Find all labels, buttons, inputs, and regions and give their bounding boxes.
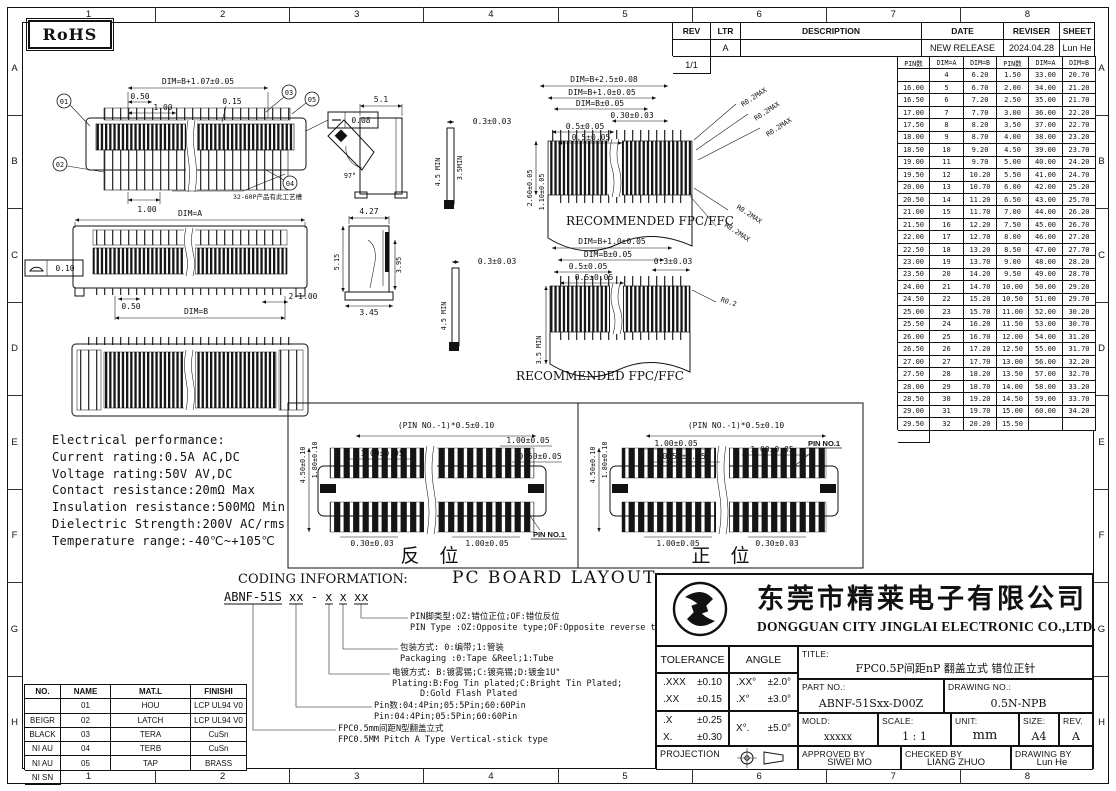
dim: 1.00 (137, 205, 156, 214)
dim: 5.15 (333, 254, 341, 270)
balloon-05: 05 (308, 96, 316, 104)
balloon-01: 01 (60, 98, 68, 106)
process-groove-note: 32-60P产品有此工艺槽 (233, 192, 302, 201)
dim: DIM=B±0.05 (584, 250, 632, 259)
balloon-03: 03 (285, 89, 293, 97)
balloon-02: 02 (56, 161, 64, 169)
dim: 4.27 (359, 207, 378, 216)
dim: 1.00±0.05 (465, 539, 509, 548)
angle-dim: 97° (344, 172, 356, 180)
radius-dim: R0.2MAX (735, 203, 764, 226)
dim: 2.60±0.05 (526, 170, 534, 207)
dim: 0.3±0.03 (478, 257, 517, 266)
dim: 0.15 (222, 97, 241, 106)
dim: 0.30±0.03 (610, 111, 654, 120)
dim: 0.30±0.03 (350, 539, 394, 548)
dim: 0.5±0.05 (566, 122, 605, 131)
dim: 1.00±0.05 (360, 449, 404, 458)
dim: 1.10±0.05 (538, 174, 546, 211)
dim: 0.50 (121, 302, 140, 311)
dim: 0.5±0.05 (572, 133, 611, 142)
radius-dim: R0.2MAX (740, 86, 769, 109)
dim: DIM=B+1.0±0.05 (568, 88, 636, 97)
company-logo (674, 583, 726, 635)
dim: 5.1 (374, 95, 389, 104)
dim: DIM=B±0.05 (576, 99, 624, 108)
front-view-closed: DIM=A 0.50 DIM=B 2-1.00 0.10 (25, 209, 318, 320)
projection-symbol (737, 748, 783, 768)
dim: 0.30±0.03 (755, 539, 799, 548)
radius-dim: R0.2 (720, 296, 738, 309)
side-view-open: 5.1 97° (328, 95, 407, 198)
dim: 0.5±0.05 (569, 262, 608, 271)
dim: 1.80±0.10 (601, 442, 609, 479)
dim: 0.3±0.03 (473, 117, 512, 126)
dim: 0.50 (130, 92, 149, 101)
coding-tree-lines (224, 604, 408, 730)
dim: 4.5 MIN (440, 302, 448, 331)
flatness-dim: 0.10 (55, 264, 74, 273)
fpc-view-2: 0.3±0.03 4.5 MIN DIM=B+1.0±0.05 DIM=B±0.… (440, 237, 738, 383)
dim: 0.3±0.03 (654, 257, 693, 266)
front-view-open: DIM=B+1.07±0.05 0.50 1.00 0.15 1.00 32-6… (53, 77, 378, 214)
dim: 1.00 (153, 103, 172, 112)
dim: DIM=A (178, 209, 202, 218)
fpc-caption: RECOMMENDED FPC/FFC (566, 214, 734, 228)
pin1-label: PIN NO.1 (808, 439, 840, 448)
fpc-view-1: 0.3±0.03 4.5 MIN 3.5MIN DIM=B+2.5±0.08 D… (434, 75, 794, 251)
technical-drawings: DIM=B+1.07±0.05 0.50 1.00 0.15 1.00 32-6… (0, 0, 1116, 791)
dim: DIM=B+1.07±0.05 (162, 77, 234, 86)
dim: 2-1.00 (289, 292, 318, 301)
drawing-sheet: 12345678 12345678 ABCDEFGH ABCDEFGH RoHS… (0, 0, 1116, 791)
bottom-view (72, 337, 308, 416)
dim: 1.00±0.05 (750, 445, 794, 454)
pin1-label: PIN NO.1 (533, 530, 565, 539)
reverse-caption: 反 位 (400, 545, 465, 567)
dim: 1.00±0.05 (654, 439, 698, 448)
radius-dim: R0.2MAX (753, 100, 782, 123)
dim: 3.95 (395, 257, 403, 273)
pcb-layout-reverse: 4.50±0.10 1.80±0.10 (PIN NO.-1)*0.5±0.10… (288, 403, 578, 568)
dim: 4.50±0.10 (299, 447, 307, 484)
balloon-04: 04 (286, 180, 294, 188)
dim: 1.00±0.05 (506, 436, 550, 445)
dim: 4.5 MIN (434, 158, 442, 187)
normal-caption: 正 位 (691, 545, 756, 567)
dim: 0.5±0.05 (575, 273, 614, 282)
dim: (PIN NO.-1)*0.5±0.10 (398, 421, 495, 430)
dim: DIM=B+2.5±0.08 (570, 75, 638, 84)
flatness-dim: 0.08 (351, 116, 370, 125)
dim: (PIN NO.-1)*0.5±0.10 (688, 421, 785, 430)
dim: 4.50±0.10 (589, 447, 597, 484)
fpc-caption: RECOMMENDED FPC/FFC (516, 369, 684, 383)
dim: 0.50±0.05 (662, 452, 706, 461)
dim: 3.45 (359, 308, 378, 317)
dim: 1.80±0.10 (311, 442, 319, 479)
pcb-layout-normal: 4.50±0.10 1.80±0.10 (PIN NO.-1)*0.5±0.10… (578, 403, 863, 568)
side-view-closed: 4.27 5.15 3.95 3.45 (333, 207, 403, 317)
dim: 0.50±0.05 (518, 452, 562, 461)
dim: 3.5MIN (456, 156, 464, 181)
dim: DIM=B+1.0±0.05 (578, 237, 646, 246)
radius-dim: R0.2MAX (765, 116, 794, 139)
dim: 3.5 MIN (535, 336, 543, 365)
dim: DIM=B (184, 307, 208, 316)
